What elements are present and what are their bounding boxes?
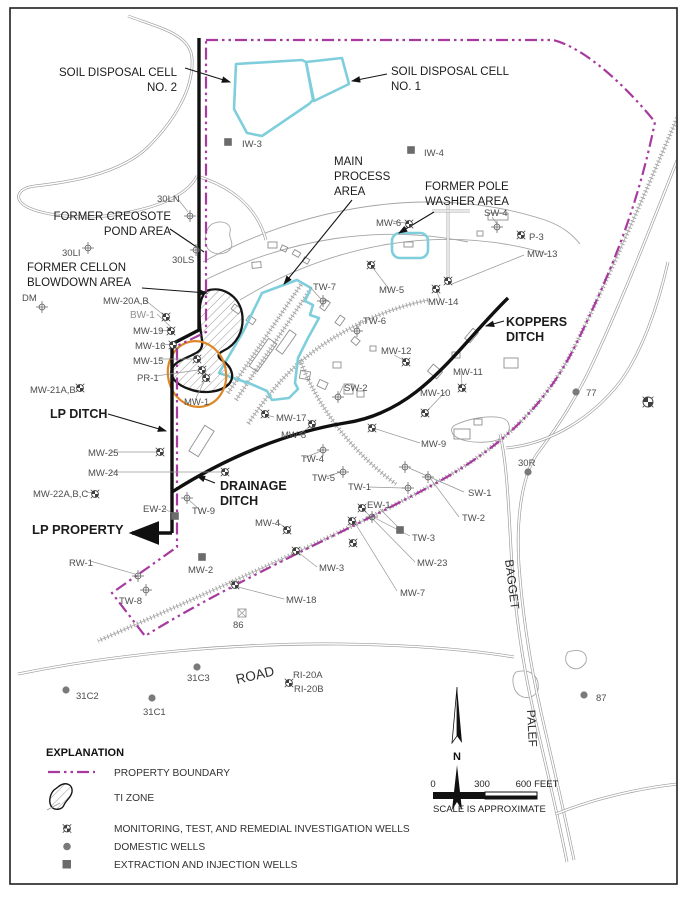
well-label: MW-4 <box>255 518 280 529</box>
monitoring-well-symbol <box>169 341 177 349</box>
legend-item-monitoring: MONITORING, TEST, AND REMEDIAL INVESTIGA… <box>63 824 410 835</box>
area-label: FORMER CELLON <box>27 262 126 274</box>
well-label: MW-14 <box>428 297 458 308</box>
road-name-label: PALEF <box>524 709 540 747</box>
monitoring-well-symbol <box>231 581 239 589</box>
area-label: DRAINAGE <box>220 479 287 493</box>
monitoring-well-symbol <box>63 824 71 832</box>
domestic-well-symbol <box>572 388 579 395</box>
well-label: MW-3 <box>319 563 344 574</box>
scale-tick-0: 0 <box>430 779 435 790</box>
well-label: TW-1 <box>348 482 371 493</box>
well-label: MW-10 <box>420 388 450 399</box>
well-label: TW-5 <box>312 473 335 484</box>
monitoring-well-symbol <box>261 410 269 418</box>
well-label: TW-7 <box>313 282 336 293</box>
well-label: MW-22A,B,C <box>33 489 88 500</box>
well-label: MW-15 <box>133 356 163 367</box>
area-label: MAIN <box>334 156 363 168</box>
well-label: IW-3 <box>242 139 262 150</box>
well-label: RI-20A <box>293 670 323 681</box>
monitoring-well-symbol <box>349 539 357 547</box>
well-label: TW-8 <box>119 596 142 607</box>
area-label: FORMER POLE <box>425 181 509 193</box>
monitoring-well-symbol <box>348 517 356 525</box>
monitoring-well-symbol <box>91 490 99 498</box>
legend-label: EXTRACTION AND INJECTION WELLS <box>114 860 298 871</box>
well-label: RI-20B <box>294 684 324 695</box>
domestic-well-symbol <box>148 694 155 701</box>
well-label: MW-18 <box>286 595 316 606</box>
area-label: KOPPERS <box>506 315 567 329</box>
well-label: 30R <box>518 458 536 469</box>
well-label: MW-9 <box>421 439 446 450</box>
monitoring-well-symbol <box>458 384 466 392</box>
well-label: TW-4 <box>301 454 324 465</box>
well-label: 30LN <box>157 194 180 205</box>
monitoring-well-symbol <box>202 374 210 382</box>
area-label: SOIL DISPOSAL CELL <box>59 67 178 79</box>
well-label: SW-2 <box>344 383 368 394</box>
monitoring-well-symbol <box>358 504 366 512</box>
well-label: BW-1 <box>130 310 155 321</box>
well-label: MW-20A,B <box>103 296 149 307</box>
well-label: 31C1 <box>143 707 166 718</box>
injection-well-symbol <box>171 512 179 520</box>
well-label: TW-3 <box>412 533 435 544</box>
monitoring-well-symbol <box>367 261 375 269</box>
area-label: BLOWDOWN AREA <box>27 277 131 289</box>
legend-label: MONITORING, TEST, AND REMEDIAL INVESTIGA… <box>114 824 410 835</box>
legend-label: PROPERTY BOUNDARY <box>114 768 230 779</box>
well-label: MW-6 <box>376 218 401 229</box>
well-label: MW-19 <box>133 326 163 337</box>
area-label: DITCH <box>220 494 258 508</box>
well-label: P-3 <box>529 232 544 243</box>
domestic-well-symbol <box>193 663 200 670</box>
well-label: TW-2 <box>462 513 485 524</box>
well-label: MW-12 <box>381 346 411 357</box>
scale-note: SCALE IS APPROXIMATE <box>433 804 546 815</box>
well-label: 31C2 <box>76 691 99 702</box>
monitoring-well-symbol <box>76 384 84 392</box>
legend-domestic-sample <box>63 843 71 851</box>
well-label: SW-1 <box>468 488 492 499</box>
well-label: EW-1 <box>367 500 391 511</box>
well-label: MW-8 <box>281 430 306 441</box>
monitoring-well-symbol <box>405 220 413 228</box>
monitoring-well-symbol <box>421 409 429 417</box>
monitoring-well-symbol <box>193 355 201 363</box>
well-label: 86 <box>233 620 244 631</box>
well-label: 31C3 <box>187 673 210 684</box>
area-label: NO. 2 <box>147 82 177 94</box>
monitoring-well-symbol <box>292 547 300 555</box>
monitoring-well-symbol <box>198 366 206 374</box>
well-label: IW-4 <box>424 148 444 159</box>
area-label: DITCH <box>506 330 544 344</box>
well-label: DM <box>22 293 37 304</box>
area-label: LP DITCH <box>50 407 107 421</box>
legend-label: DOMESTIC WELLS <box>114 842 205 853</box>
well-label: EW-2 <box>143 504 167 515</box>
monitoring-well-symbol <box>285 679 293 687</box>
area-label: FORMER CREOSOTE <box>53 211 171 223</box>
well-label: TW-9 <box>192 506 215 517</box>
well-label: SW-4 <box>484 208 508 219</box>
monitoring-well-symbol <box>283 526 291 534</box>
monitoring-well-symbol <box>643 397 654 408</box>
well-label: MW-2 <box>188 565 213 576</box>
domestic-well-symbol <box>62 686 69 693</box>
well-label: MW-13 <box>527 249 557 260</box>
well-label: MW-11 <box>453 367 483 378</box>
monitoring-well-symbol <box>368 424 376 432</box>
well-label: RW-1 <box>69 558 93 569</box>
well-label: MW-21A,B <box>30 385 76 396</box>
monitoring-well-symbol <box>517 231 525 239</box>
site-map-page: IW-3IW-430LN30LI30LSDMMW-20A,BBW-1MW-19M… <box>0 0 689 900</box>
well-label: 87 <box>596 693 607 704</box>
well-label: MW-16 <box>135 341 165 352</box>
north-label: N <box>453 751 461 763</box>
scale-tick-600: 600 FEET <box>516 779 559 790</box>
monitoring-well-symbol <box>162 313 170 321</box>
legend-label: TI ZONE <box>114 793 154 804</box>
well-label: MW-5 <box>379 285 404 296</box>
area-label: PROCESS <box>334 171 391 183</box>
area-label: NO. 1 <box>391 81 421 93</box>
monitoring-well-symbol <box>308 420 316 428</box>
monitoring-well-symbol <box>167 327 175 335</box>
area-label: LP PROPERTY <box>32 522 124 537</box>
well-label: MW-17 <box>276 413 306 424</box>
area-label: SOIL DISPOSAL CELL <box>391 66 510 78</box>
injection-well-symbol <box>396 526 404 534</box>
injection-well-symbol <box>224 138 232 146</box>
domestic-well-symbol <box>580 691 587 698</box>
monitoring-well-symbol <box>444 277 452 285</box>
monitoring-well-symbol <box>402 358 410 366</box>
domestic-well-symbol <box>524 468 531 475</box>
monitoring-well-symbol <box>432 285 440 293</box>
area-label: WASHER AREA <box>425 196 509 208</box>
well-label: 30LS <box>172 255 194 266</box>
site-map: IW-3IW-430LN30LI30LSDMMW-20A,BBW-1MW-19M… <box>0 0 689 900</box>
well-label: TW-6 <box>363 316 386 327</box>
well-label: MW-24 <box>88 468 118 479</box>
monitoring-well-symbol <box>221 468 229 476</box>
legend-injection-sample <box>63 860 72 869</box>
well-label: 77 <box>586 388 597 399</box>
area-label: AREA <box>334 186 366 198</box>
well-label: MW-7 <box>400 588 425 599</box>
monitoring-well-symbol <box>156 448 164 456</box>
scale-bar-left-segment <box>433 792 485 799</box>
well-label: 30LI <box>62 248 81 259</box>
well-label: MW-25 <box>88 448 118 459</box>
scale-tick-300: 300 <box>474 779 490 790</box>
injection-well-symbol <box>198 553 206 561</box>
well-label: PR-1 <box>137 373 159 384</box>
area-label: POND AREA <box>104 226 171 238</box>
injection-well-symbol <box>407 146 415 154</box>
scale-bar-right-fill <box>485 796 537 800</box>
well-label: MW-23 <box>417 558 447 569</box>
legend-title: EXPLANATION <box>46 747 124 759</box>
well-label: MW-1 <box>184 397 209 408</box>
